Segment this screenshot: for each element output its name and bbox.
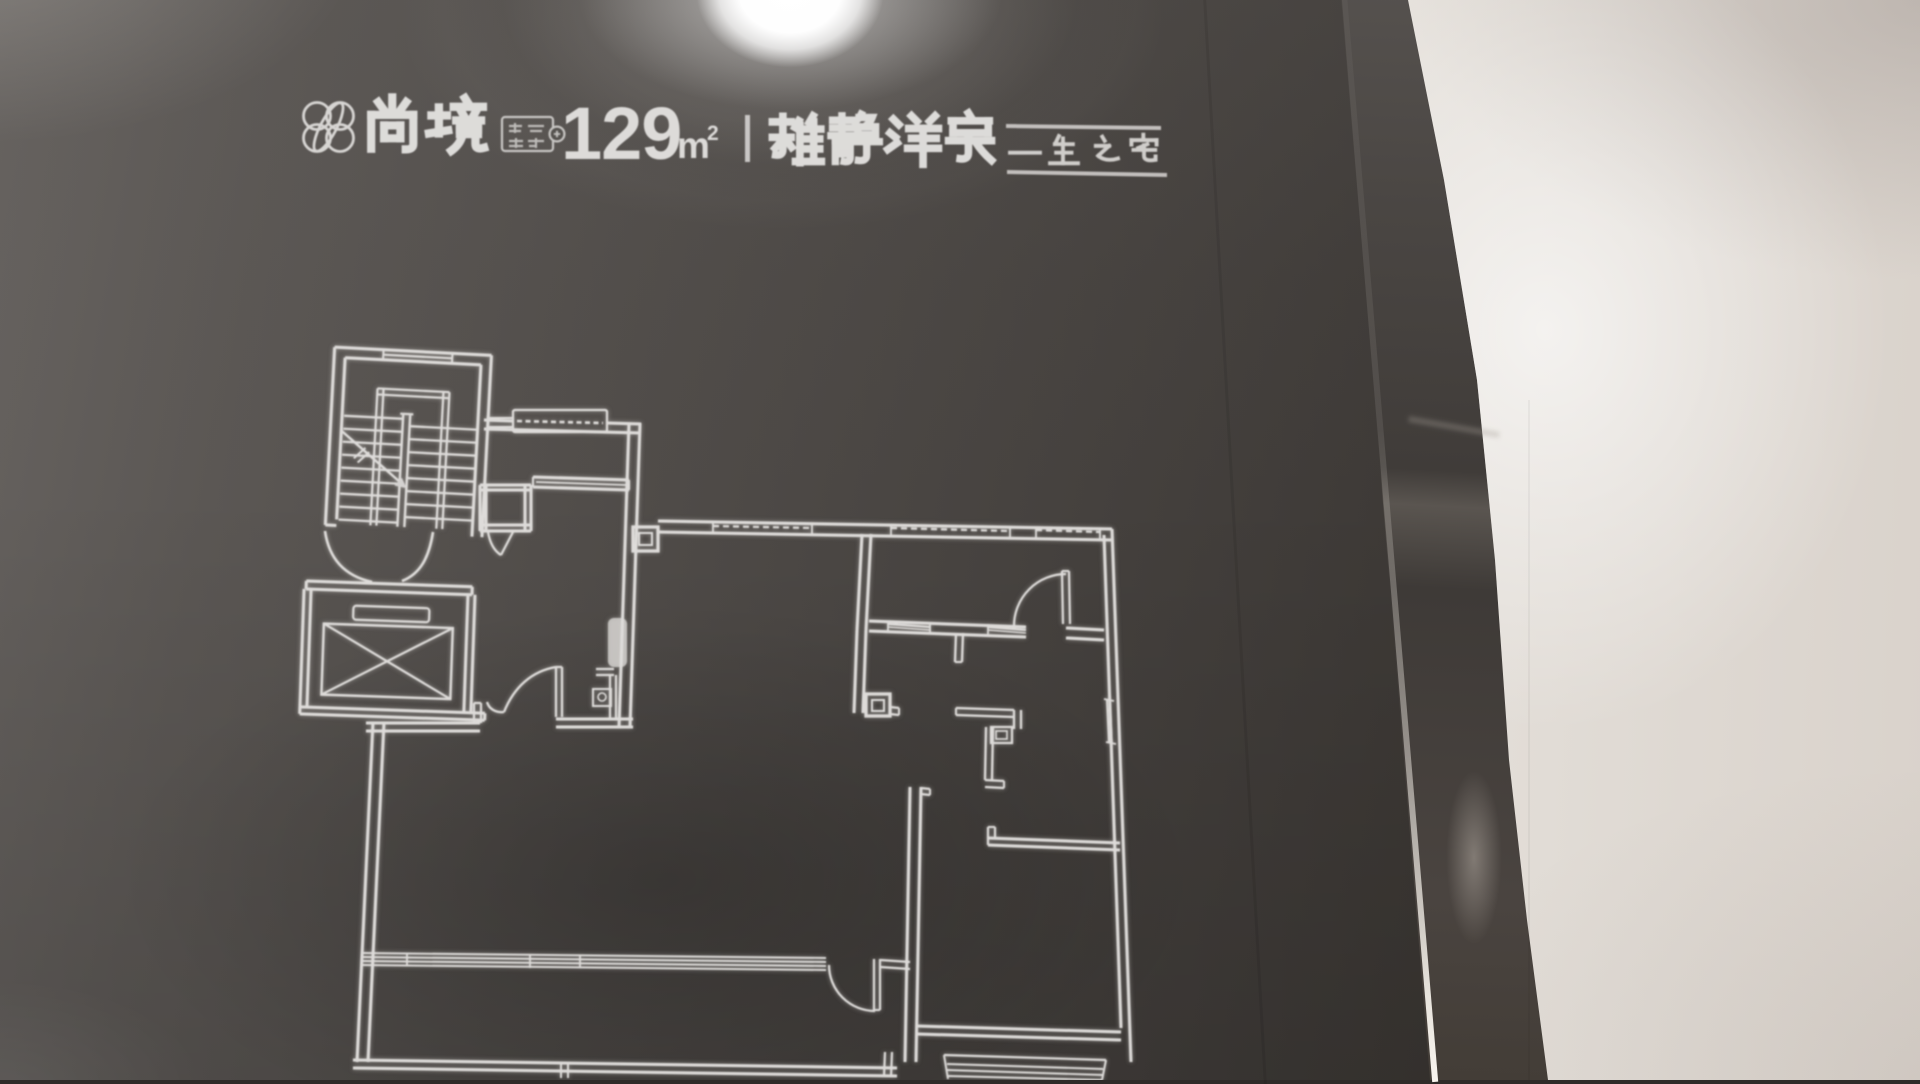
svg-text:129: 129 bbox=[561, 92, 681, 175]
svg-text:2: 2 bbox=[707, 122, 719, 145]
svg-text:m: m bbox=[677, 125, 710, 166]
